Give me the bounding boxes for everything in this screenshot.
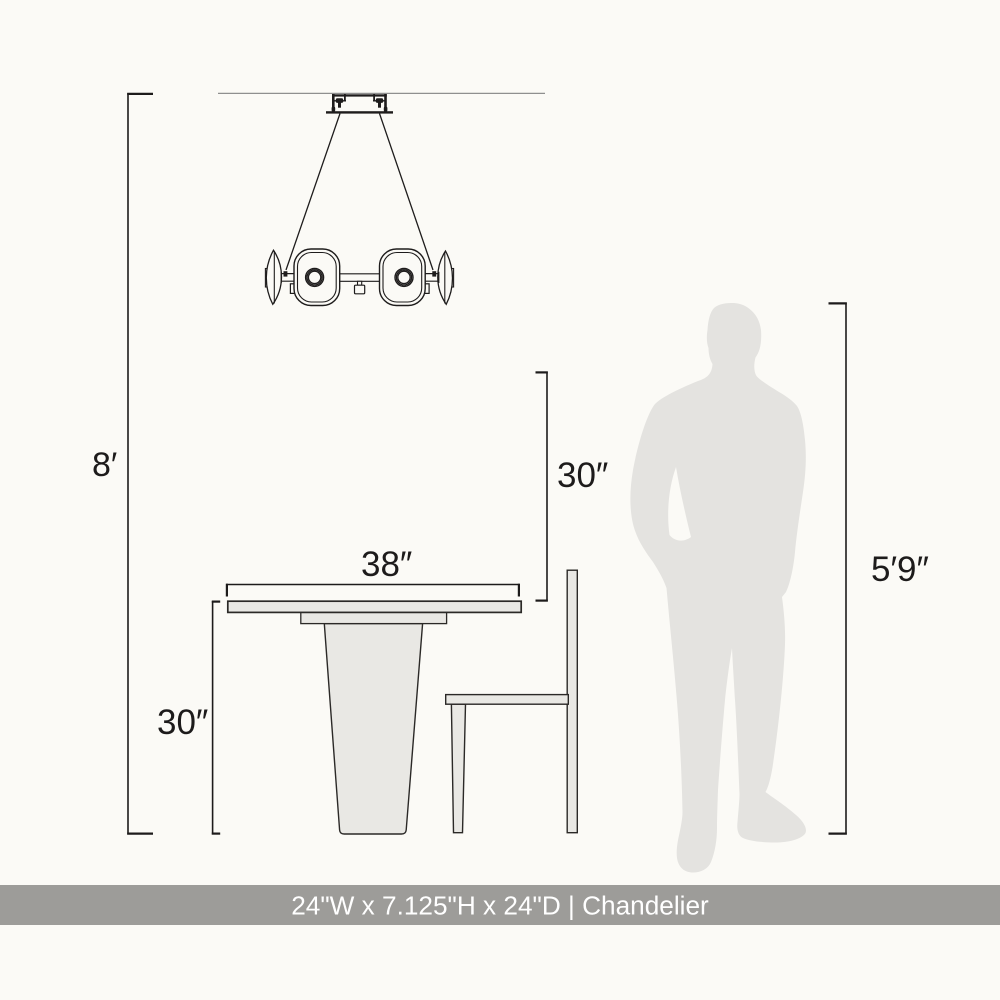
svg-text:38″: 38″ bbox=[361, 545, 412, 584]
svg-text:24"W x 7.125"H x 24"D | Chande: 24"W x 7.125"H x 24"D | Chandelier bbox=[291, 891, 709, 921]
svg-text:30″: 30″ bbox=[557, 456, 608, 495]
svg-text:5′9″: 5′9″ bbox=[871, 550, 929, 589]
svg-text:30″: 30″ bbox=[157, 703, 208, 742]
svg-text:8′: 8′ bbox=[92, 446, 117, 484]
